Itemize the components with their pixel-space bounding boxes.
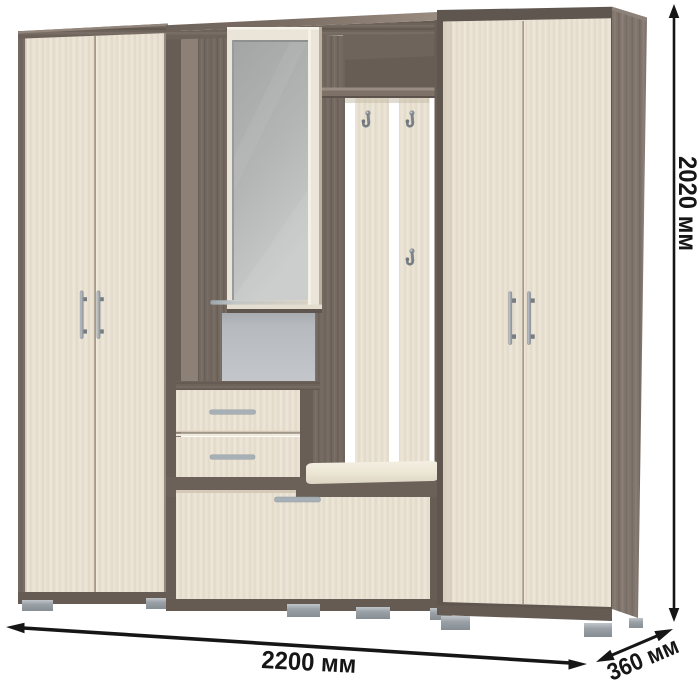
svg-text:2200 мм: 2200 мм <box>261 646 357 679</box>
svg-text:2020 мм: 2020 мм <box>673 156 700 251</box>
